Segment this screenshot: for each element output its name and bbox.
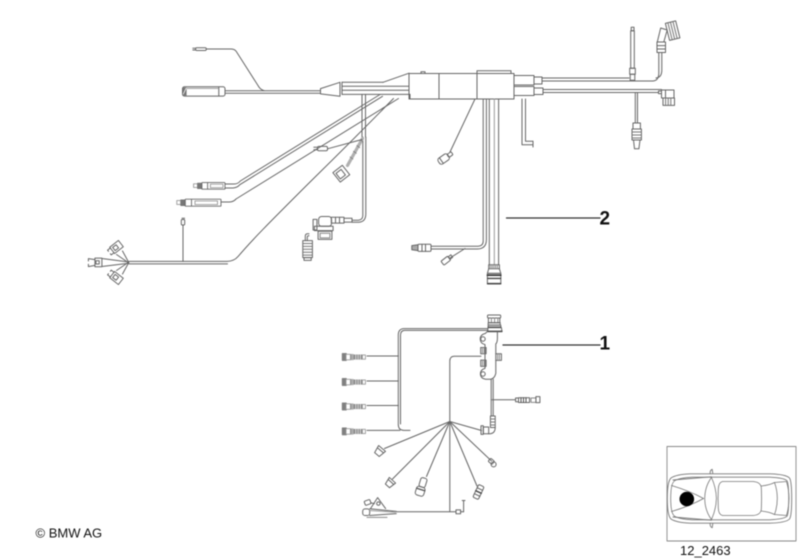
svg-text:12_2463: 12_2463: [680, 543, 731, 558]
svg-text:© BMW AG: © BMW AG: [36, 526, 103, 541]
svg-text:1: 1: [600, 334, 611, 355]
svg-text:2: 2: [600, 208, 611, 229]
